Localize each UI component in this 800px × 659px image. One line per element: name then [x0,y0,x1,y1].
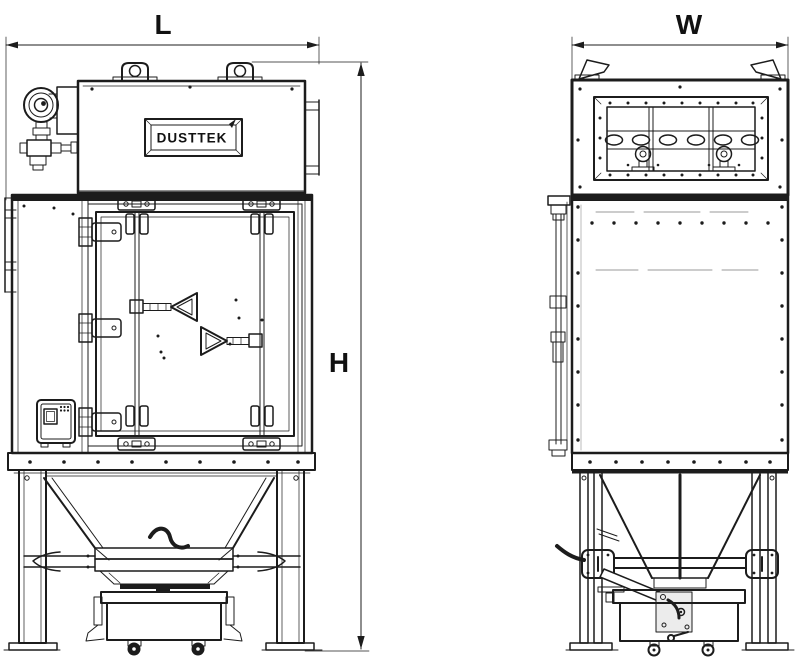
rod-cam-guide [126,214,273,426]
pulse-valve-assembly [20,87,78,170]
cabinet-side-body [572,195,788,453]
bin-body[interactable] [107,603,221,640]
dimension-label-H: H [329,347,349,378]
crossbar-front [24,552,300,571]
door-hinge [79,314,121,342]
bin-lid [101,592,227,603]
crossbar-side [557,546,778,578]
lifting-lug [751,60,781,79]
arrow-right-icon [776,42,788,49]
door-panel-inner [101,217,289,431]
hidden-lines [596,212,758,270]
arrow-right-icon [307,42,319,49]
foot-plate [266,643,314,650]
lifting-lug [113,63,157,81]
leg [262,470,322,650]
dimension-label-L: L [154,9,171,40]
inlet-flange-panel [594,97,768,180]
bar-paddle [746,550,778,578]
dimension-height: H [252,62,369,651]
plenum-side [572,80,788,195]
control-panel-enclosure[interactable] [37,400,75,443]
leg [4,470,60,650]
drawing-canvas: L H [0,0,800,659]
control-panel[interactable] [37,400,75,447]
foot-plate [746,643,788,650]
hopper-front [44,476,277,569]
lifting-lugs-front [113,63,262,81]
dimension-label-W: W [676,9,703,40]
arrow-left-icon [572,42,584,49]
door-hinge [79,408,121,436]
front-view: L H [4,9,369,656]
brand-logo-tick-icon [229,119,236,128]
latch-plate [118,438,155,450]
brand-plate: DUSTTEK [145,119,242,156]
door-handle-lower[interactable] [201,327,262,355]
foot-plate [570,643,612,650]
latch-plate [243,438,280,450]
base-flange-side [572,453,788,470]
hopper-collar [95,548,233,559]
hopper-top-band [572,470,788,474]
lifting-lug [218,63,262,81]
bar-end-bracket [258,552,285,571]
caster-wheel [649,641,660,656]
air-regulator [27,140,51,156]
arrow-down-icon [357,636,364,649]
air-manifold-pipe [548,196,570,456]
lever-arm-mechanism[interactable] [600,569,692,641]
legs-front [4,470,322,650]
caster-wheel [192,640,206,656]
valve-mount-bracket [57,87,78,134]
caster-wheel [128,640,142,656]
outlet-flange-right [305,100,319,175]
door-hinge [79,218,121,246]
dust-bin-front [86,529,242,656]
lifting-lug [579,60,609,79]
side-view: W [548,9,794,656]
arrow-up-icon [357,63,364,76]
lifting-lugs-side [575,60,785,80]
cabinet-side [548,195,788,456]
base-flange-front [8,453,315,473]
foot-plate [9,643,57,650]
inlet-flange-left [5,198,16,292]
access-door[interactable] [79,198,294,450]
door-handle-upper[interactable] [130,293,197,321]
clamp-knob[interactable] [627,147,660,172]
caster-wheel [703,641,714,656]
arrow-left-icon [6,42,18,49]
pivot-bracket [656,592,692,632]
cabinet-top-band [572,195,788,201]
dust-collector-technical-drawing: L H [0,0,800,659]
brand-logo-text: DUSTTEK [157,131,228,146]
bin-release-handle[interactable] [150,529,188,548]
bolt-dots [576,205,783,441]
slot-holes [606,135,759,145]
